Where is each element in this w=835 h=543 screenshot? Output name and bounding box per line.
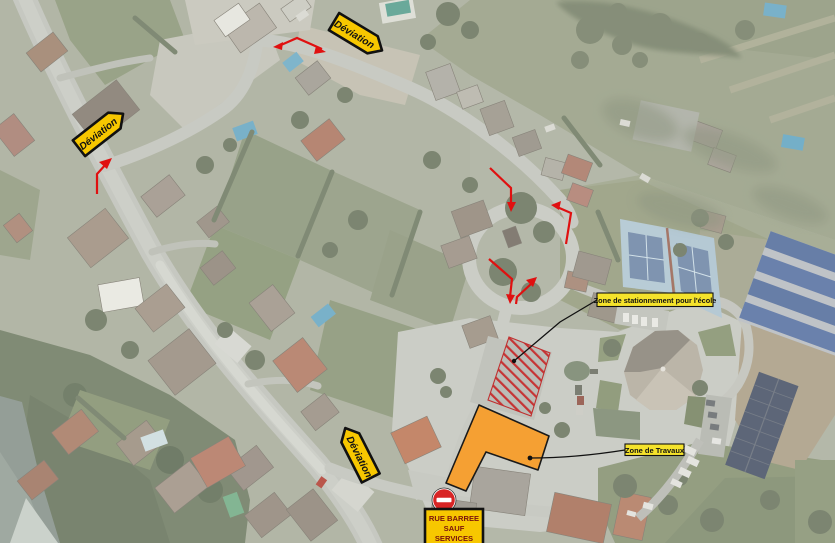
svg-text:SERVICES: SERVICES (435, 534, 473, 543)
svg-text:RUE BARREE: RUE BARREE (429, 514, 479, 523)
svg-text:SAUF: SAUF (444, 524, 465, 533)
svg-text:Zone de stationnement pour l'é: Zone de stationnement pour l'école (594, 296, 717, 305)
svg-text:Zone de Travaux: Zone de Travaux (625, 446, 685, 455)
